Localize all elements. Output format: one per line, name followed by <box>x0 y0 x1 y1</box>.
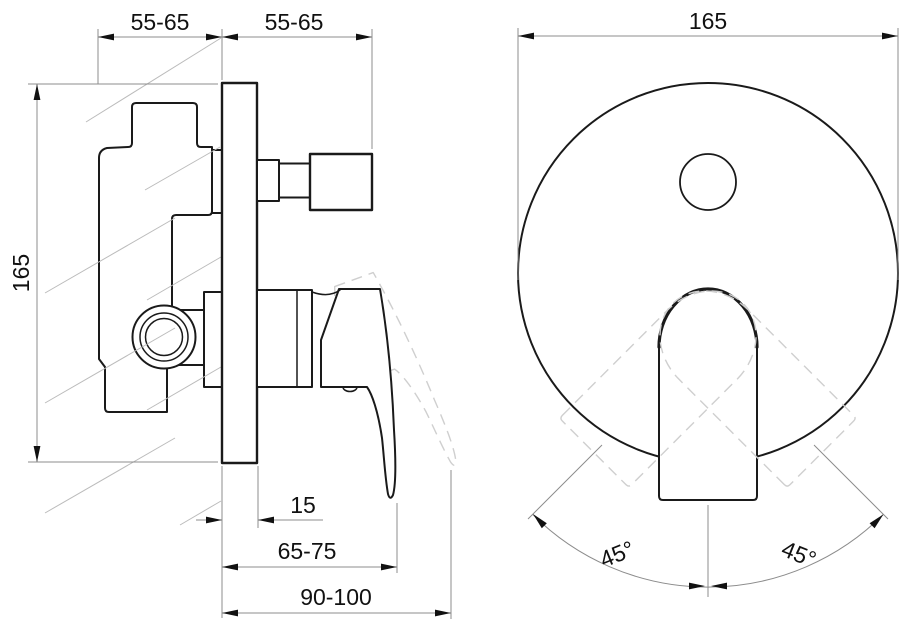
mixer-handle-side <box>321 289 395 498</box>
diverter-flange <box>212 150 222 213</box>
diverter-shaft <box>279 164 310 198</box>
drawing-canvas: 55-65 55-65 165 15 65-75 <box>0 0 900 622</box>
diverter-knob-side <box>257 154 372 210</box>
dim-label-plate-offset: 15 <box>290 492 316 518</box>
mixer-handle-front <box>659 289 757 500</box>
cartridge-flange <box>204 292 222 387</box>
diverter-knob-front <box>680 154 736 210</box>
technical-drawing: 55-65 55-65 165 15 65-75 <box>0 0 900 622</box>
diverter-knob <box>310 154 372 210</box>
cartridge-housing-side <box>257 290 312 387</box>
dim-label-swing-right: 45° <box>778 535 820 572</box>
swing-left-extension <box>528 445 602 519</box>
dim-label-depth-in-front: 55-65 <box>265 9 324 35</box>
water-port-outer-circle <box>133 306 196 369</box>
dim-label-plate-height: 165 <box>8 254 34 292</box>
swing-right-extension <box>814 445 888 519</box>
dim-lever-reach-open: 90-100 <box>222 470 451 619</box>
dim-label-depth-behind-wall: 55-65 <box>131 9 190 35</box>
wall-plate-side <box>222 83 257 463</box>
dim-label-swing-left: 45° <box>596 535 638 572</box>
side-view: 55-65 55-65 165 15 65-75 <box>8 9 459 619</box>
dim-label-plate-diameter: 165 <box>689 8 727 34</box>
dim-label-lever-reach-closed: 65-75 <box>278 538 337 564</box>
dim-label-lever-reach-open: 90-100 <box>300 584 372 610</box>
handle-neck-curve <box>312 290 340 295</box>
front-view: 165 45° 45° <box>518 8 898 597</box>
diverter-stem <box>257 160 279 201</box>
